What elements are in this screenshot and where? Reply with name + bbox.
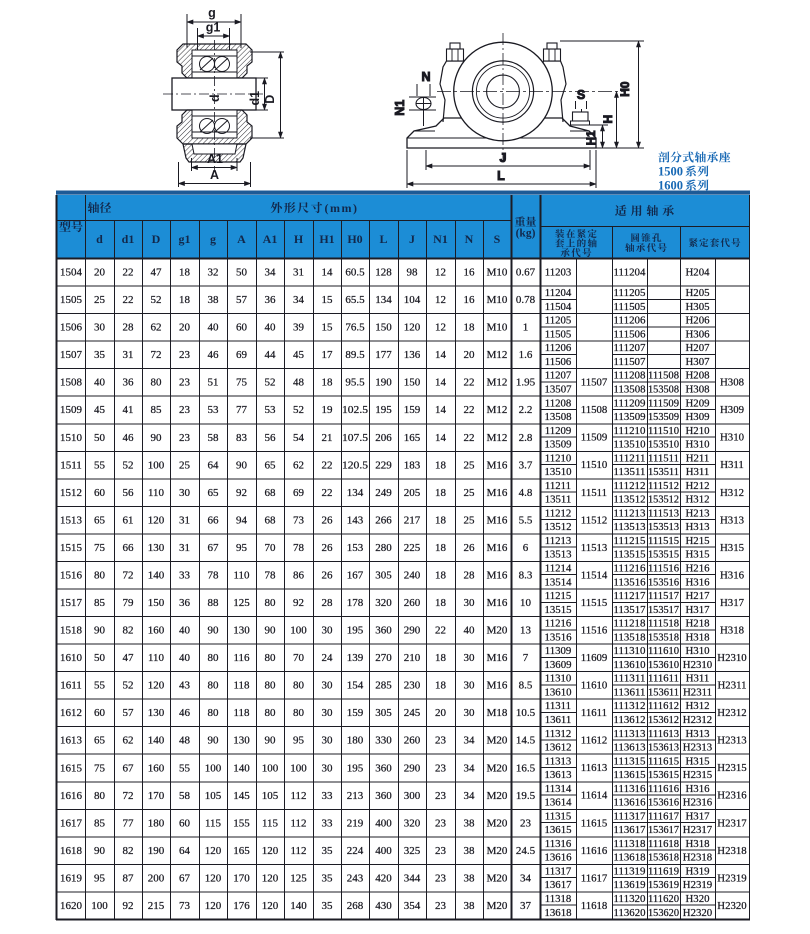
svg-text:(mm): (mm) <box>325 201 359 215</box>
svg-text:13609: 13609 <box>545 659 572 671</box>
svg-text:d1: d1 <box>122 232 135 246</box>
svg-text:H316: H316 <box>686 783 711 795</box>
svg-text:21: 21 <box>322 432 333 444</box>
svg-text:111611: 111611 <box>648 673 679 685</box>
svg-text:H311: H311 <box>720 459 744 471</box>
svg-text:245: 245 <box>404 707 421 719</box>
svg-text:95: 95 <box>236 542 248 554</box>
svg-text:80: 80 <box>265 707 277 719</box>
svg-text:224: 224 <box>347 845 364 857</box>
svg-text:N: N <box>421 70 430 84</box>
svg-text:100: 100 <box>205 762 222 774</box>
svg-text:H204: H204 <box>686 266 711 278</box>
svg-text:285: 285 <box>375 680 392 692</box>
svg-text:30: 30 <box>322 707 334 719</box>
svg-text:153518: 153518 <box>648 631 679 643</box>
svg-text:H213: H213 <box>686 507 710 519</box>
svg-text:77: 77 <box>236 404 248 416</box>
svg-text:105: 105 <box>262 790 279 802</box>
svg-text:11510: 11510 <box>581 459 608 471</box>
svg-text:46: 46 <box>179 707 191 719</box>
svg-text:111515: 111515 <box>648 535 679 547</box>
svg-text:85: 85 <box>94 597 106 609</box>
svg-text:8.5: 8.5 <box>519 680 533 692</box>
svg-text:110: 110 <box>148 487 165 499</box>
svg-text:45: 45 <box>94 404 106 416</box>
svg-text:55: 55 <box>94 680 106 692</box>
svg-text:1600: 1600 <box>658 179 683 193</box>
svg-text:17: 17 <box>322 349 334 361</box>
svg-text:153615: 153615 <box>648 769 679 781</box>
svg-text:360: 360 <box>375 625 392 637</box>
svg-text:80: 80 <box>208 680 220 692</box>
svg-text:110: 110 <box>148 652 165 664</box>
svg-text:1620: 1620 <box>60 900 83 912</box>
svg-text:153620: 153620 <box>648 907 679 919</box>
svg-text:H2315: H2315 <box>683 769 712 781</box>
svg-text:12: 12 <box>435 322 446 334</box>
svg-text:13507: 13507 <box>545 384 573 396</box>
svg-text:1513: 1513 <box>60 514 83 526</box>
svg-text:128: 128 <box>375 267 392 279</box>
svg-text:120: 120 <box>205 845 222 857</box>
svg-text:39: 39 <box>293 322 305 334</box>
svg-text:125: 125 <box>290 872 307 884</box>
svg-text:18: 18 <box>435 680 447 692</box>
svg-text:354: 354 <box>404 900 421 912</box>
svg-text:H310: H310 <box>686 645 710 657</box>
svg-text:M16: M16 <box>487 597 508 609</box>
svg-text:82: 82 <box>123 845 134 857</box>
svg-text:30: 30 <box>179 487 191 499</box>
svg-text:37: 37 <box>520 900 532 912</box>
svg-text:13513: 13513 <box>545 549 572 561</box>
svg-text:155: 155 <box>233 817 250 829</box>
svg-text:11212: 11212 <box>545 507 572 519</box>
svg-text:11310: 11310 <box>545 673 572 685</box>
svg-text:13615: 13615 <box>545 824 572 836</box>
svg-text:230: 230 <box>404 680 421 692</box>
svg-text:50: 50 <box>94 432 106 444</box>
svg-text:195: 195 <box>347 762 364 774</box>
svg-text:16.5: 16.5 <box>516 762 536 774</box>
svg-text:M16: M16 <box>487 570 508 582</box>
svg-text:g1: g1 <box>206 21 221 35</box>
svg-text:107.5: 107.5 <box>342 432 369 444</box>
svg-text:160: 160 <box>148 625 165 637</box>
svg-text:43: 43 <box>179 680 191 692</box>
svg-text:30: 30 <box>464 652 476 664</box>
svg-text:4.8: 4.8 <box>519 487 533 499</box>
svg-text:52: 52 <box>123 459 134 471</box>
svg-text:11208: 11208 <box>545 397 572 409</box>
svg-text:61: 61 <box>123 514 134 526</box>
svg-text:H210: H210 <box>686 425 710 437</box>
svg-text:80: 80 <box>151 377 163 389</box>
svg-text:113619: 113619 <box>614 879 646 891</box>
svg-text:1500: 1500 <box>658 165 683 179</box>
svg-text:325: 325 <box>404 845 421 857</box>
svg-text:170: 170 <box>233 872 250 884</box>
svg-text:102.5: 102.5 <box>342 404 369 416</box>
svg-text:1516: 1516 <box>60 570 83 582</box>
svg-text:7: 7 <box>523 652 529 664</box>
svg-text:290: 290 <box>404 625 421 637</box>
svg-text:115: 115 <box>262 817 279 829</box>
svg-text:62: 62 <box>293 459 304 471</box>
svg-text:H309: H309 <box>720 404 744 416</box>
svg-text:H: H <box>601 115 615 124</box>
svg-text:113610: 113610 <box>614 659 646 671</box>
svg-text:1610: 1610 <box>60 652 83 664</box>
svg-text:11216: 11216 <box>545 618 572 630</box>
svg-text:57: 57 <box>123 707 135 719</box>
svg-text:111517: 111517 <box>648 590 680 602</box>
svg-text:60: 60 <box>94 487 106 499</box>
svg-text:M20: M20 <box>487 735 508 747</box>
svg-text:H212: H212 <box>686 480 710 492</box>
svg-text:64: 64 <box>208 459 220 471</box>
svg-text:M20: M20 <box>487 762 508 774</box>
svg-text:1.6: 1.6 <box>519 349 533 361</box>
svg-text:111612: 111612 <box>648 700 679 712</box>
svg-text:H2311: H2311 <box>683 687 712 699</box>
svg-text:H217: H217 <box>686 590 711 602</box>
svg-text:40: 40 <box>464 625 476 637</box>
svg-text:300: 300 <box>404 790 421 802</box>
svg-text:30: 30 <box>464 597 476 609</box>
svg-text:24.5: 24.5 <box>516 845 536 857</box>
svg-text:73: 73 <box>293 514 305 526</box>
svg-text:400: 400 <box>375 817 392 829</box>
svg-text:M16: M16 <box>487 459 508 471</box>
svg-text:67: 67 <box>179 872 191 884</box>
svg-text:111505: 111505 <box>614 301 646 313</box>
svg-text:206: 206 <box>375 432 392 444</box>
svg-text:60.5: 60.5 <box>345 267 365 279</box>
svg-text:H308: H308 <box>720 377 744 389</box>
svg-text:87: 87 <box>123 872 135 884</box>
svg-text:H315: H315 <box>686 755 710 767</box>
svg-text:78: 78 <box>293 542 305 554</box>
svg-text:6: 6 <box>523 542 529 554</box>
svg-text:H2315: H2315 <box>717 762 746 774</box>
svg-text:80: 80 <box>208 652 220 664</box>
svg-text:13510: 13510 <box>545 466 572 478</box>
svg-text:19: 19 <box>322 404 334 416</box>
svg-text:25: 25 <box>464 459 476 471</box>
svg-text:1506: 1506 <box>60 322 83 334</box>
svg-text:153516: 153516 <box>648 576 680 588</box>
svg-text:20: 20 <box>179 322 191 334</box>
svg-text:86: 86 <box>293 570 305 582</box>
svg-text:83: 83 <box>236 432 248 444</box>
svg-text:11610: 11610 <box>581 680 608 692</box>
svg-text:22: 22 <box>464 404 475 416</box>
svg-text:J: J <box>409 232 415 246</box>
svg-text:23: 23 <box>179 349 191 361</box>
svg-text:13611: 13611 <box>545 714 572 726</box>
svg-text:H2316: H2316 <box>717 790 747 802</box>
svg-text:12: 12 <box>435 267 446 279</box>
svg-text:113509: 113509 <box>614 411 646 423</box>
svg-text:H317: H317 <box>720 597 745 609</box>
svg-text:153613: 153613 <box>648 742 679 754</box>
svg-text:H316: H316 <box>720 569 745 581</box>
svg-text:11207: 11207 <box>545 370 572 382</box>
svg-text:1611: 1611 <box>60 680 82 692</box>
svg-text:11314: 11314 <box>545 783 572 795</box>
svg-text:111512: 111512 <box>648 480 679 492</box>
svg-text:18: 18 <box>435 652 447 664</box>
svg-text:31: 31 <box>179 514 190 526</box>
svg-text:H317: H317 <box>686 810 711 822</box>
svg-text:280: 280 <box>375 542 392 554</box>
svg-text:18: 18 <box>435 542 447 554</box>
svg-text:46: 46 <box>208 349 220 361</box>
svg-text:23: 23 <box>435 845 447 857</box>
svg-text:120: 120 <box>148 680 165 692</box>
svg-text:111511: 111511 <box>648 452 679 464</box>
svg-text:178: 178 <box>347 597 364 609</box>
svg-text:1507: 1507 <box>60 349 83 361</box>
svg-text:1.95: 1.95 <box>516 377 536 389</box>
svg-text:62: 62 <box>151 322 162 334</box>
svg-text:g: g <box>210 232 216 246</box>
svg-text:183: 183 <box>404 459 421 471</box>
svg-text:11508: 11508 <box>581 404 608 416</box>
svg-text:167: 167 <box>347 570 364 582</box>
svg-text:13613: 13613 <box>545 769 572 781</box>
svg-text:34: 34 <box>464 735 476 747</box>
svg-text:11206: 11206 <box>545 342 572 354</box>
svg-text:111507: 111507 <box>614 356 647 368</box>
svg-text:60: 60 <box>236 322 248 334</box>
svg-text:100: 100 <box>91 900 108 912</box>
svg-text:32: 32 <box>208 267 219 279</box>
svg-text:15: 15 <box>322 322 334 334</box>
svg-text:H216: H216 <box>686 563 711 575</box>
svg-text:111215: 111215 <box>614 535 646 547</box>
svg-text:77: 77 <box>123 817 135 829</box>
svg-text:30: 30 <box>464 707 476 719</box>
svg-text:53: 53 <box>265 404 277 416</box>
svg-text:153513: 153513 <box>648 521 679 533</box>
svg-text:D: D <box>152 232 161 246</box>
svg-text:1617: 1617 <box>60 817 83 829</box>
svg-text:45: 45 <box>293 349 305 361</box>
svg-text:H316: H316 <box>686 576 711 588</box>
svg-text:13515: 13515 <box>545 604 572 616</box>
svg-text:58: 58 <box>179 790 191 802</box>
svg-text:195: 195 <box>347 625 364 637</box>
svg-text:111516: 111516 <box>648 563 680 575</box>
svg-text:23: 23 <box>520 817 532 829</box>
svg-text:M10: M10 <box>487 322 508 334</box>
svg-text:22: 22 <box>464 432 475 444</box>
svg-text:H308: H308 <box>686 384 710 396</box>
svg-text:136: 136 <box>404 349 421 361</box>
svg-text:A1: A1 <box>207 152 223 166</box>
svg-text:290: 290 <box>404 762 421 774</box>
svg-text:72: 72 <box>151 349 162 361</box>
svg-text:H2319: H2319 <box>683 879 712 891</box>
svg-text:12: 12 <box>435 294 446 306</box>
svg-text:52: 52 <box>151 294 162 306</box>
svg-text:13511: 13511 <box>545 494 572 506</box>
svg-text:M12: M12 <box>487 432 508 444</box>
svg-text:243: 243 <box>347 872 364 884</box>
svg-text:1612: 1612 <box>60 707 82 719</box>
svg-text:111311: 111311 <box>614 673 646 685</box>
svg-text:H319: H319 <box>686 866 710 878</box>
svg-text:430: 430 <box>375 900 392 912</box>
svg-text:11211: 11211 <box>545 480 571 492</box>
svg-text:H315: H315 <box>686 549 710 561</box>
svg-text:68: 68 <box>265 487 277 499</box>
svg-text:11612: 11612 <box>581 735 608 747</box>
svg-text:34: 34 <box>520 872 532 884</box>
svg-text:78: 78 <box>208 570 220 582</box>
svg-text:38: 38 <box>464 872 476 884</box>
svg-text:113618: 113618 <box>614 852 646 864</box>
svg-text:130: 130 <box>233 625 250 637</box>
svg-text:1518: 1518 <box>60 625 83 637</box>
svg-text:M18: M18 <box>487 707 508 719</box>
svg-text:M16: M16 <box>487 680 508 692</box>
svg-text:180: 180 <box>347 735 364 747</box>
svg-text:111312: 111312 <box>614 700 646 712</box>
svg-text:1509: 1509 <box>60 404 83 416</box>
svg-text:11516: 11516 <box>581 625 608 637</box>
svg-text:111313: 111313 <box>614 728 646 740</box>
svg-text:66: 66 <box>208 514 220 526</box>
svg-text:26: 26 <box>464 542 476 554</box>
svg-text:13516: 13516 <box>545 631 573 643</box>
svg-text:H305: H305 <box>686 301 710 313</box>
svg-text:H2316: H2316 <box>683 797 713 809</box>
svg-text:13509: 13509 <box>545 439 572 451</box>
svg-text:150: 150 <box>148 597 165 609</box>
svg-text:113617: 113617 <box>614 824 647 836</box>
svg-text:268: 268 <box>347 900 364 912</box>
svg-text:113620: 113620 <box>614 907 646 919</box>
svg-text:M20: M20 <box>487 625 508 637</box>
svg-text:1: 1 <box>523 322 529 334</box>
svg-text:23: 23 <box>435 762 447 774</box>
svg-text:50: 50 <box>94 652 106 664</box>
svg-text:11616: 11616 <box>581 845 608 857</box>
svg-text:153509: 153509 <box>648 411 679 423</box>
svg-text:14: 14 <box>322 267 334 279</box>
svg-text:113612: 113612 <box>614 714 646 726</box>
svg-text:1508: 1508 <box>60 377 83 389</box>
svg-text:23: 23 <box>435 817 447 829</box>
svg-text:118: 118 <box>233 707 250 719</box>
svg-text:H313: H313 <box>686 521 710 533</box>
svg-text:111319: 111319 <box>614 866 646 878</box>
svg-text:38: 38 <box>464 845 476 857</box>
svg-text:140: 140 <box>148 735 165 747</box>
svg-text:H2317: H2317 <box>683 824 713 836</box>
svg-text:1616: 1616 <box>60 790 83 802</box>
svg-text:165: 165 <box>404 432 421 444</box>
svg-text:111509: 111509 <box>648 397 679 409</box>
svg-text:H2318: H2318 <box>717 845 746 857</box>
svg-text:64: 64 <box>179 845 191 857</box>
svg-text:330: 330 <box>375 735 392 747</box>
svg-text:134: 134 <box>375 294 392 306</box>
svg-text:140: 140 <box>233 762 250 774</box>
svg-text:260: 260 <box>404 735 421 747</box>
svg-text:111310: 111310 <box>614 645 646 657</box>
svg-text:18: 18 <box>435 459 447 471</box>
svg-text:H211: H211 <box>686 452 710 464</box>
svg-text:20: 20 <box>435 707 447 719</box>
svg-text:41: 41 <box>123 404 134 416</box>
svg-text:111318: 111318 <box>614 838 646 850</box>
svg-text:47: 47 <box>123 652 135 664</box>
svg-text:H312: H312 <box>720 487 744 499</box>
svg-text:11204: 11204 <box>545 287 572 299</box>
svg-text:72: 72 <box>123 570 134 582</box>
svg-text:11313: 11313 <box>545 755 572 767</box>
svg-text:78: 78 <box>265 570 277 582</box>
svg-text:H315: H315 <box>720 542 744 554</box>
svg-text:J: J <box>500 151 507 165</box>
svg-text:36: 36 <box>179 597 191 609</box>
svg-text:14: 14 <box>435 349 447 361</box>
svg-text:85: 85 <box>151 404 163 416</box>
svg-text:18: 18 <box>464 322 476 334</box>
svg-text:35: 35 <box>94 349 106 361</box>
svg-text:11512: 11512 <box>581 514 608 526</box>
svg-text:113517: 113517 <box>614 604 647 616</box>
svg-text:16: 16 <box>464 294 476 306</box>
svg-text:360: 360 <box>375 762 392 774</box>
svg-text:100: 100 <box>262 762 279 774</box>
svg-text:111212: 111212 <box>614 480 646 492</box>
svg-text:35: 35 <box>322 845 334 857</box>
svg-text:13618: 13618 <box>545 907 572 919</box>
svg-text:23: 23 <box>179 432 191 444</box>
svg-text:11513: 11513 <box>581 542 608 554</box>
svg-text:H312: H312 <box>686 494 710 506</box>
svg-text:92: 92 <box>236 487 247 499</box>
svg-text:52: 52 <box>265 377 276 389</box>
svg-text:143: 143 <box>347 514 364 526</box>
svg-text:51: 51 <box>208 377 219 389</box>
svg-text:H2310: H2310 <box>683 659 712 671</box>
svg-text:H2318: H2318 <box>683 852 712 864</box>
svg-text:H2311: H2311 <box>718 680 747 692</box>
svg-text:23: 23 <box>435 872 447 884</box>
svg-text:80: 80 <box>265 597 277 609</box>
svg-text:H2313: H2313 <box>683 742 712 754</box>
svg-text:1613: 1613 <box>60 735 83 747</box>
svg-text:11511: 11511 <box>581 487 607 499</box>
svg-text:249: 249 <box>375 487 392 499</box>
svg-text:22: 22 <box>322 459 333 471</box>
svg-text:56: 56 <box>265 432 277 444</box>
svg-text:H2317: H2317 <box>717 817 747 829</box>
svg-text:153508: 153508 <box>648 384 679 396</box>
svg-text:30: 30 <box>322 625 334 637</box>
svg-text:165: 165 <box>233 845 250 857</box>
svg-text:111316: 111316 <box>614 783 647 795</box>
svg-text:90: 90 <box>208 625 220 637</box>
svg-text:14.5: 14.5 <box>516 735 536 747</box>
